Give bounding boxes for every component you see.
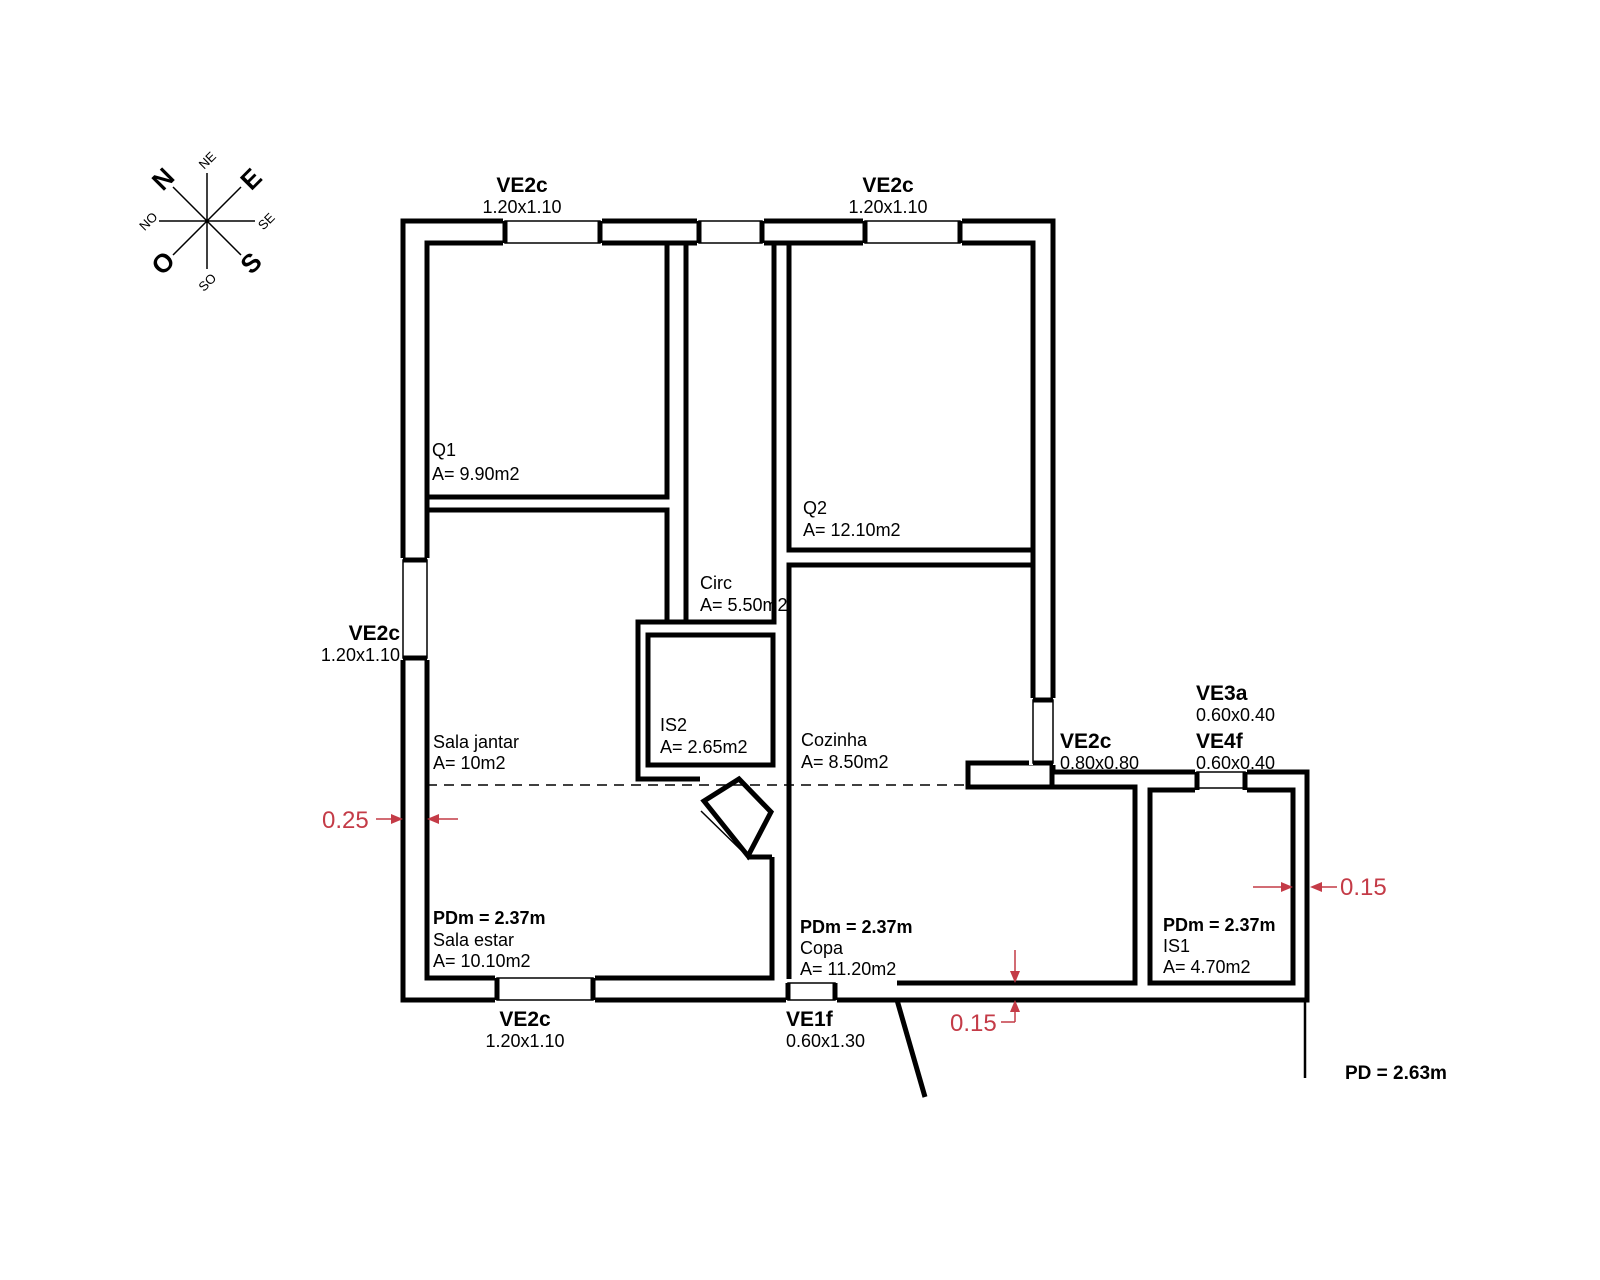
window-label-ve2c-left: VE2c <box>349 622 401 645</box>
compass-rose: N E S O NE SE SO NO <box>136 148 278 294</box>
room-sala-estar-ceiling: PDm = 2.37m <box>433 908 546 928</box>
wall-stub <box>968 763 1052 787</box>
window-label-ve2c-top-left: VE2c <box>496 174 548 197</box>
floor-plan-svg: 0.25 0.15 0.15 VE2c 1.20x1.10 VE2c 1.20x… <box>0 0 1600 1280</box>
room-cozinha-area: A= 8.50m2 <box>801 752 889 772</box>
room-copa-outline <box>897 787 1135 983</box>
room-circ-area: A= 5.50m2 <box>700 595 788 615</box>
window-gap <box>863 215 962 247</box>
dimension-value: 0.15 <box>950 1010 997 1037</box>
room-is2-name: IS2 <box>660 715 687 735</box>
window-size-ve2c-bottom: 1.20x1.10 <box>485 1031 564 1051</box>
window-label-ve2c-top-right: VE2c <box>862 174 914 197</box>
room-cozinha-name: Cozinha <box>801 730 868 750</box>
dimension-arrow <box>1310 882 1322 892</box>
room-q2-name: Q2 <box>803 498 827 518</box>
interior-door-leaf <box>704 779 771 856</box>
window-label-ve1f: VE1f <box>786 1008 834 1031</box>
window-gap <box>503 215 602 247</box>
window-gap <box>697 215 764 247</box>
window-label-ve2c-kitchen: VE2c <box>1060 730 1112 753</box>
compass-south: S <box>234 246 267 279</box>
compass-southeast: SE <box>255 210 278 233</box>
dimension-value: 0.25 <box>322 807 369 834</box>
room-copa-area: A= 11.20m2 <box>800 959 896 979</box>
floor-plan-canvas: 0.25 0.15 0.15 VE2c 1.20x1.10 VE2c 1.20x… <box>0 0 1600 1280</box>
room-is1-name: IS1 <box>1163 936 1190 956</box>
exterior-wall-outline <box>403 221 1307 1000</box>
window-size-ve2c-kitchen: 0.80x0.80 <box>1060 753 1139 773</box>
room-sala-jantar-area: A= 10m2 <box>433 753 506 773</box>
ceiling-height-note: PD = 2.63m <box>1345 1063 1447 1084</box>
room-q2-area: A= 12.10m2 <box>803 520 901 540</box>
window-openings <box>399 215 1247 1004</box>
compass-northeast: NE <box>196 148 220 172</box>
window-size-ve2c-top-left: 1.20x1.10 <box>482 197 561 217</box>
dimension-right-wall: 0.15 <box>1253 874 1387 901</box>
room-q1-area: A= 9.90m2 <box>432 464 520 484</box>
window-size-ve2c-top-right: 1.20x1.10 <box>848 197 927 217</box>
window-gap <box>399 558 431 660</box>
dimension-bottom-wall: 0.15 <box>950 950 1020 1037</box>
window-label-ve2c-bottom: VE2c <box>499 1008 551 1031</box>
window-size-ve4f: 0.60x0.40 <box>1196 753 1275 773</box>
room-circ-name: Circ <box>700 573 732 593</box>
exterior-door-leaf <box>897 1000 925 1097</box>
room-q1-outline <box>427 243 667 497</box>
dimension-value: 0.15 <box>1340 874 1387 901</box>
room-is2-area: A= 2.65m2 <box>660 737 748 757</box>
compass-southwest: SO <box>195 270 219 294</box>
window-label-ve4f: VE4f <box>1196 730 1244 753</box>
room-sala-jantar-name: Sala jantar <box>433 732 519 752</box>
room-circ-outline <box>686 243 774 622</box>
room-copa-ceiling: PDm = 2.37m <box>800 917 913 937</box>
room-sala-estar-name: Sala estar <box>433 930 514 950</box>
room-copa-name: Copa <box>800 938 844 958</box>
window-size-ve2c-left: 1.20x1.10 <box>321 645 400 665</box>
compass-west: O <box>145 245 181 281</box>
compass-north: N <box>146 162 180 196</box>
compass-east: E <box>234 162 267 195</box>
window-size-ve1f: 0.60x1.30 <box>786 1031 865 1051</box>
window-size-ve3a: 0.60x0.40 <box>1196 705 1275 725</box>
dimension-left-wall: 0.25 <box>322 807 458 834</box>
room-q1-name: Q1 <box>432 440 456 460</box>
compass-northwest: NO <box>136 209 160 233</box>
room-is1-ceiling: PDm = 2.37m <box>1163 915 1276 935</box>
room-is1-area: A= 4.70m2 <box>1163 957 1251 977</box>
window-label-ve3a: VE3a <box>1196 682 1248 705</box>
room-sala-estar-area: A= 10.10m2 <box>433 951 531 971</box>
